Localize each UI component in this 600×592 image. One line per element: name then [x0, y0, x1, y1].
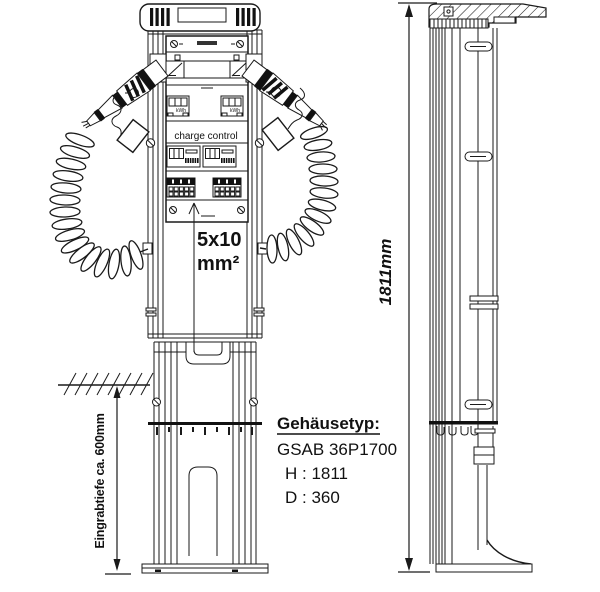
- terminal-block-left: [167, 178, 195, 197]
- meter-right-label: kWh: [230, 108, 240, 114]
- arrowhead-down: [405, 558, 413, 571]
- front-cap: [140, 4, 260, 31]
- cable-spec-line1: 5x10: [197, 229, 242, 251]
- arrowhead-up: [405, 4, 413, 17]
- charge-controller-right: [203, 146, 236, 167]
- plug-holster-right: [262, 118, 294, 151]
- side-foot-flare: [487, 540, 531, 564]
- spec-height: H : 1811: [285, 464, 348, 483]
- spec-model: GSAB 36P1700: [277, 440, 397, 459]
- indicator-left: [175, 55, 180, 60]
- header-slot: [197, 41, 217, 45]
- meter-left-label: kWh: [176, 108, 186, 114]
- arrowhead-up: [114, 386, 121, 398]
- energy-meter-right: kWh: [221, 96, 243, 116]
- charging-plug-left: [77, 59, 169, 136]
- side-ground-line: [429, 421, 498, 425]
- cable-spec-line2: mm²: [197, 253, 240, 275]
- service-door: [189, 467, 217, 556]
- cable-spec-callout: 5x10 mm²: [189, 203, 242, 352]
- charge-control-label: charge control: [174, 131, 237, 142]
- coiled-cable-right: [260, 124, 339, 263]
- spec-block: Gehäusetyp: GSAB 36P1700 H : 1811 D : 36…: [277, 414, 397, 507]
- control-panel: kWh kWh charge control: [166, 36, 248, 222]
- charging-column-drawing: 1811mm: [0, 0, 600, 592]
- technical-drawing-canvas: 1811mm: [0, 0, 600, 592]
- burial-depth-dimension: Eingrabtiefe ca. 600mm: [93, 386, 131, 574]
- spec-title: Gehäusetyp:: [277, 414, 380, 433]
- hinge-marks: [146, 308, 264, 316]
- spec-depth: D : 360: [285, 488, 340, 507]
- height-dimension-label: 1811mm: [376, 239, 395, 306]
- front-view: kWh kWh charge control: [140, 4, 268, 573]
- burial-depth-label: Eingrabtiefe ca. 600mm: [93, 413, 107, 548]
- height-dimension: 1811mm: [376, 3, 437, 572]
- socket-covers: [166, 61, 248, 78]
- front-base-section: [142, 342, 268, 573]
- side-view: [429, 4, 546, 572]
- energy-meter-left: kWh: [167, 96, 189, 116]
- charging-plug-right: [241, 59, 333, 136]
- terminal-block-right: [213, 178, 241, 197]
- side-lower-bar: [475, 429, 495, 433]
- indicator-right: [234, 55, 239, 60]
- charge-controller-left: [167, 146, 200, 167]
- side-cap-slot: [494, 17, 515, 23]
- arrowhead-down: [114, 559, 121, 571]
- side-ground-clips: [437, 426, 478, 435]
- plug-holster-left: [117, 120, 149, 153]
- ground-hatch: [58, 373, 153, 395]
- side-base-plate: [436, 564, 532, 572]
